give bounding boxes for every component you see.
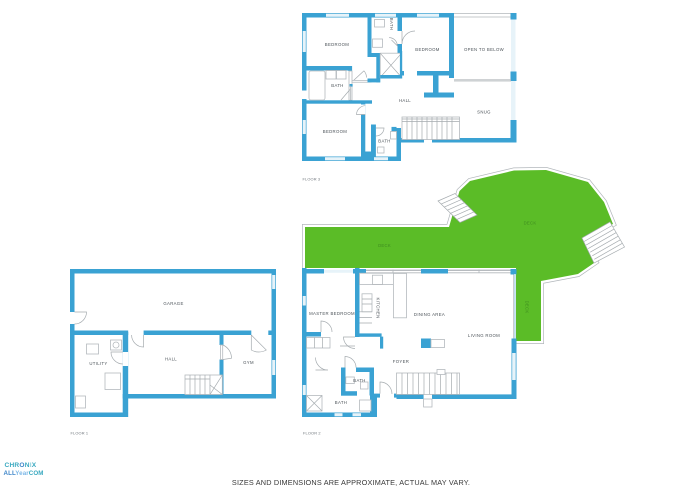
- svg-text:HALL: HALL: [399, 98, 411, 103]
- svg-text:BATH: BATH: [353, 378, 365, 383]
- svg-text:BEDROOM: BEDROOM: [415, 47, 440, 52]
- svg-text:SNUG: SNUG: [477, 110, 491, 115]
- svg-text:HALL: HALL: [165, 357, 177, 362]
- svg-text:DECK: DECK: [525, 301, 530, 314]
- svg-text:DECK: DECK: [378, 243, 391, 248]
- svg-text:GARAGE: GARAGE: [163, 301, 183, 306]
- svg-text:FOYER: FOYER: [393, 359, 409, 364]
- svg-text:FLOOR 2: FLOOR 2: [303, 431, 321, 436]
- svg-text:SIZES AND DIMENSIONS ARE APPRO: SIZES AND DIMENSIONS ARE APPROXIMATE, AC…: [232, 478, 470, 487]
- svg-text:BATH: BATH: [335, 400, 347, 405]
- svg-text:BATH: BATH: [378, 139, 390, 144]
- svg-text:UTILITY: UTILITY: [89, 361, 107, 366]
- svg-text:LIVING ROOM: LIVING ROOM: [468, 333, 500, 338]
- svg-text:ALLYearCOM: ALLYearCOM: [4, 470, 44, 477]
- svg-text:KITCHEN: KITCHEN: [376, 297, 381, 318]
- svg-text:OPEN TO BELOW: OPEN TO BELOW: [464, 47, 505, 52]
- svg-text:DINING AREA: DINING AREA: [414, 312, 445, 317]
- svg-text:DECK: DECK: [524, 221, 537, 226]
- svg-text:BATH: BATH: [389, 18, 394, 30]
- svg-text:FLOOR 1: FLOOR 1: [71, 431, 89, 436]
- svg-text:BEDROOM: BEDROOM: [323, 129, 348, 134]
- svg-text:BATH: BATH: [331, 83, 343, 88]
- svg-text:CHRONIX: CHRONIX: [5, 462, 37, 469]
- svg-text:FLOOR 3: FLOOR 3: [303, 177, 321, 182]
- svg-text:GYM: GYM: [243, 360, 254, 365]
- svg-text:MASTER BEDROOM: MASTER BEDROOM: [309, 311, 355, 316]
- svg-text:BEDROOM: BEDROOM: [325, 42, 350, 47]
